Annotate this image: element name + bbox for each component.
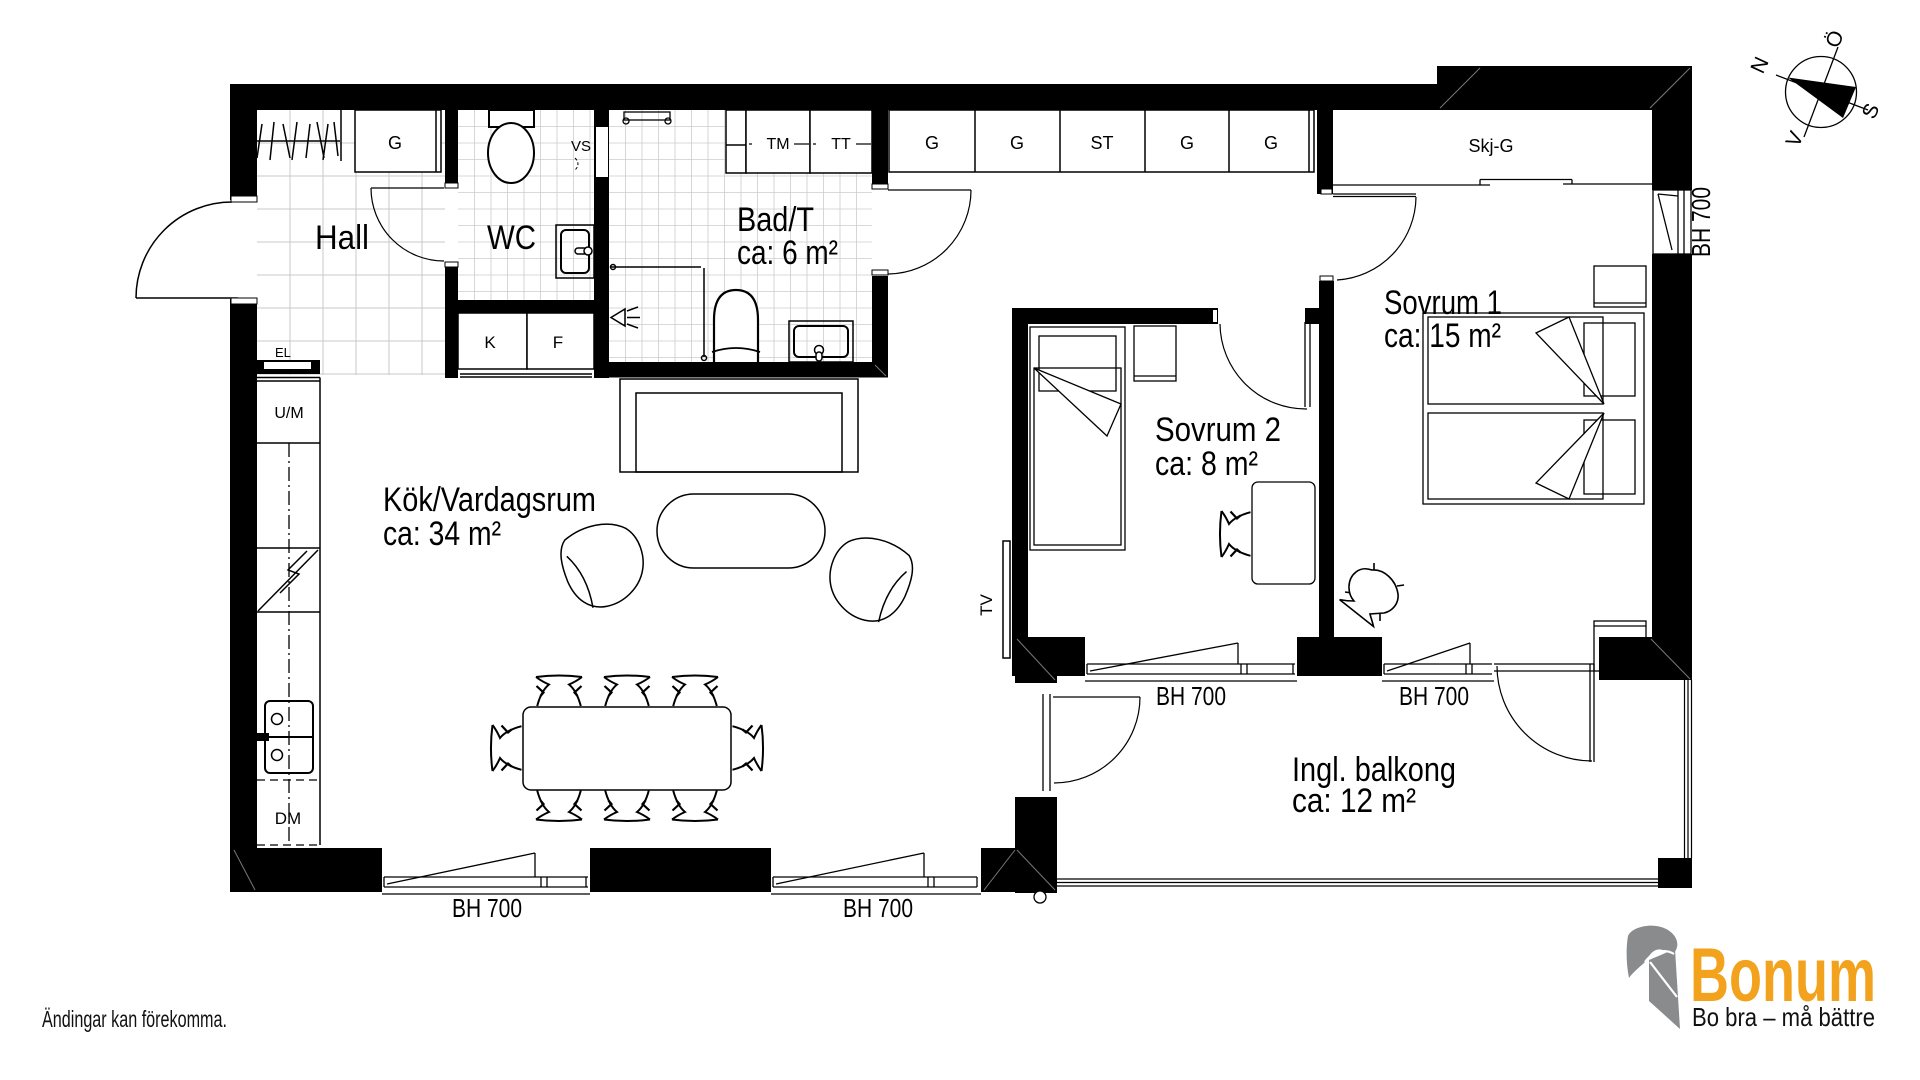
svg-text:ca: 8 m²: ca: 8 m² [1155, 445, 1258, 483]
svg-text:TT: TT [831, 136, 851, 153]
svg-text:ca: 15 m²: ca: 15 m² [1384, 317, 1501, 355]
svg-text:DM: DM [275, 809, 301, 828]
svg-text:G: G [1264, 133, 1278, 153]
svg-text:EL: EL [275, 345, 291, 360]
svg-text:ca: 34 m²: ca: 34 m² [383, 515, 501, 553]
svg-text:K: K [484, 333, 496, 352]
svg-text:TM: TM [766, 136, 789, 153]
svg-text:Kök/Vardagsrum: Kök/Vardagsrum [383, 481, 596, 519]
svg-text:BH 700: BH 700 [1156, 681, 1226, 711]
svg-text:TV: TV [977, 593, 996, 615]
svg-text:ST: ST [1090, 133, 1113, 153]
svg-text:Sovrum 2: Sovrum 2 [1155, 411, 1281, 449]
svg-text:U/M: U/M [274, 405, 303, 422]
svg-text:BH 700: BH 700 [1686, 187, 1716, 257]
svg-text:BH 700: BH 700 [843, 893, 913, 923]
svg-text:Bo bra – må bättre: Bo bra – må bättre [1692, 1002, 1875, 1032]
svg-text:ca: 12 m²: ca: 12 m² [1292, 782, 1416, 820]
svg-text:VS: VS [571, 138, 591, 155]
svg-text:BH 700: BH 700 [1399, 681, 1469, 711]
svg-text:F: F [553, 333, 563, 352]
svg-text:WC: WC [487, 219, 536, 257]
svg-text:Ändingar kan förekomma.: Ändingar kan förekomma. [42, 1006, 227, 1032]
svg-text:G: G [1180, 133, 1194, 153]
svg-text:G: G [388, 133, 402, 153]
svg-text:ca: 6 m²: ca: 6 m² [737, 234, 838, 272]
svg-text:Skj-G: Skj-G [1469, 136, 1514, 156]
svg-text:BH 700: BH 700 [452, 893, 522, 923]
svg-text:Hall: Hall [315, 219, 369, 257]
svg-text:G: G [1010, 133, 1024, 153]
svg-text:G: G [925, 133, 939, 153]
